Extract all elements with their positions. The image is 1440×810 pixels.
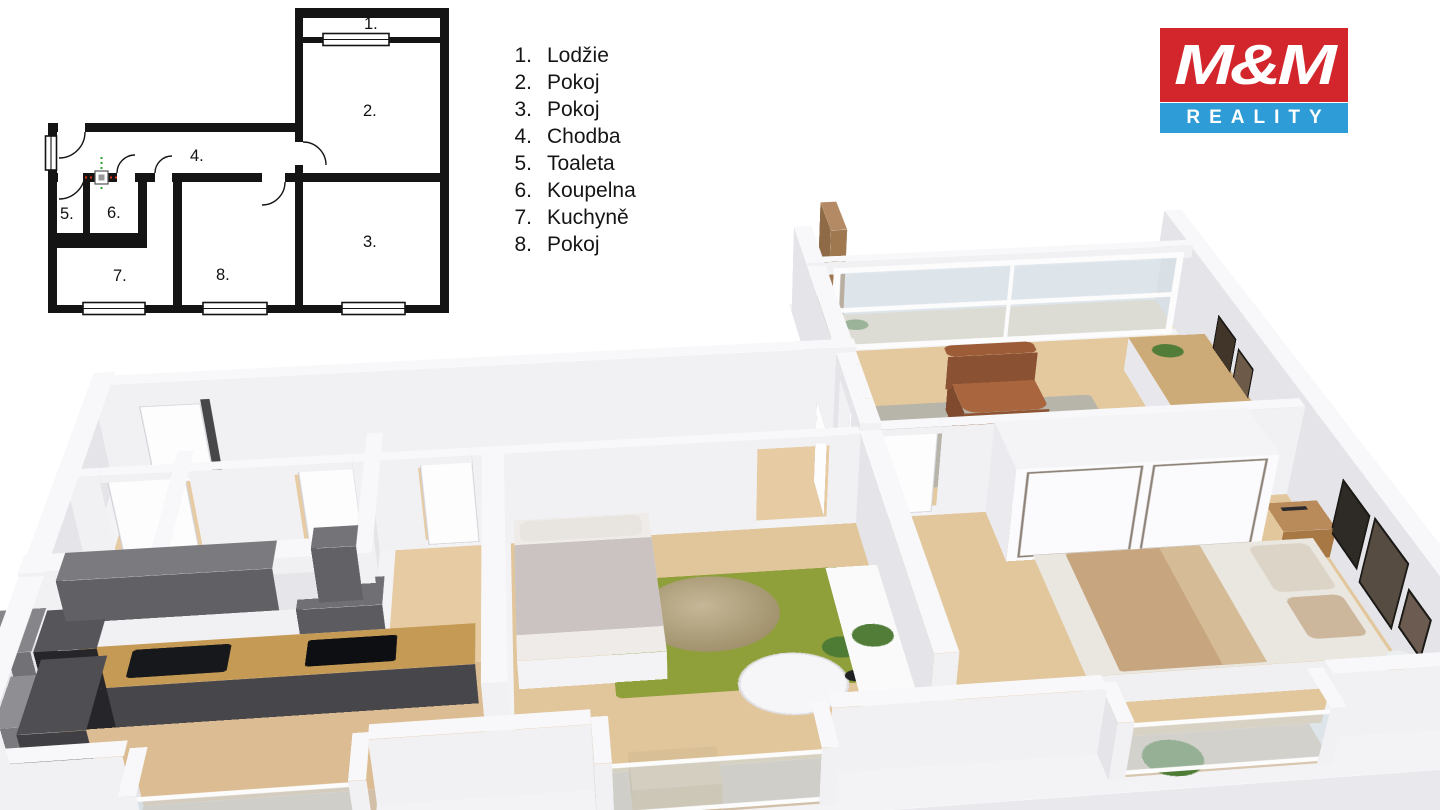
room-number-5: 5. (60, 205, 74, 223)
render-3d-stage (0, 294, 1440, 810)
legend-item-1: 1.Lodžie (500, 42, 636, 69)
wall-hall-e-front (826, 434, 861, 525)
wall-kitchen-room8-top (481, 454, 508, 684)
room-number-6: 6. (107, 204, 121, 222)
wardrobe-door-seam (1140, 459, 1269, 550)
page-canvas: 1. 2. 3. 4. 5. 6. 7. 8. 1.Lodžie 2.Pokoj… (0, 0, 1440, 810)
floorplan-3d-render (135, 88, 1440, 810)
wardrobe-door-seam (1017, 466, 1143, 558)
legend-number: 1. (500, 42, 532, 69)
room-number-7: 7. (113, 267, 127, 285)
kitchen-hood-chimney-top (311, 525, 359, 548)
bed-room8-blanket (514, 537, 664, 635)
legend-label: Lodžie (547, 42, 609, 69)
door-kitchen (419, 456, 480, 545)
kitchen-hood-chimney-front (311, 546, 364, 603)
bay-room8-left-front (594, 763, 614, 810)
room-number-1: 1. (364, 15, 378, 33)
bay-room8-right-front (819, 747, 839, 806)
